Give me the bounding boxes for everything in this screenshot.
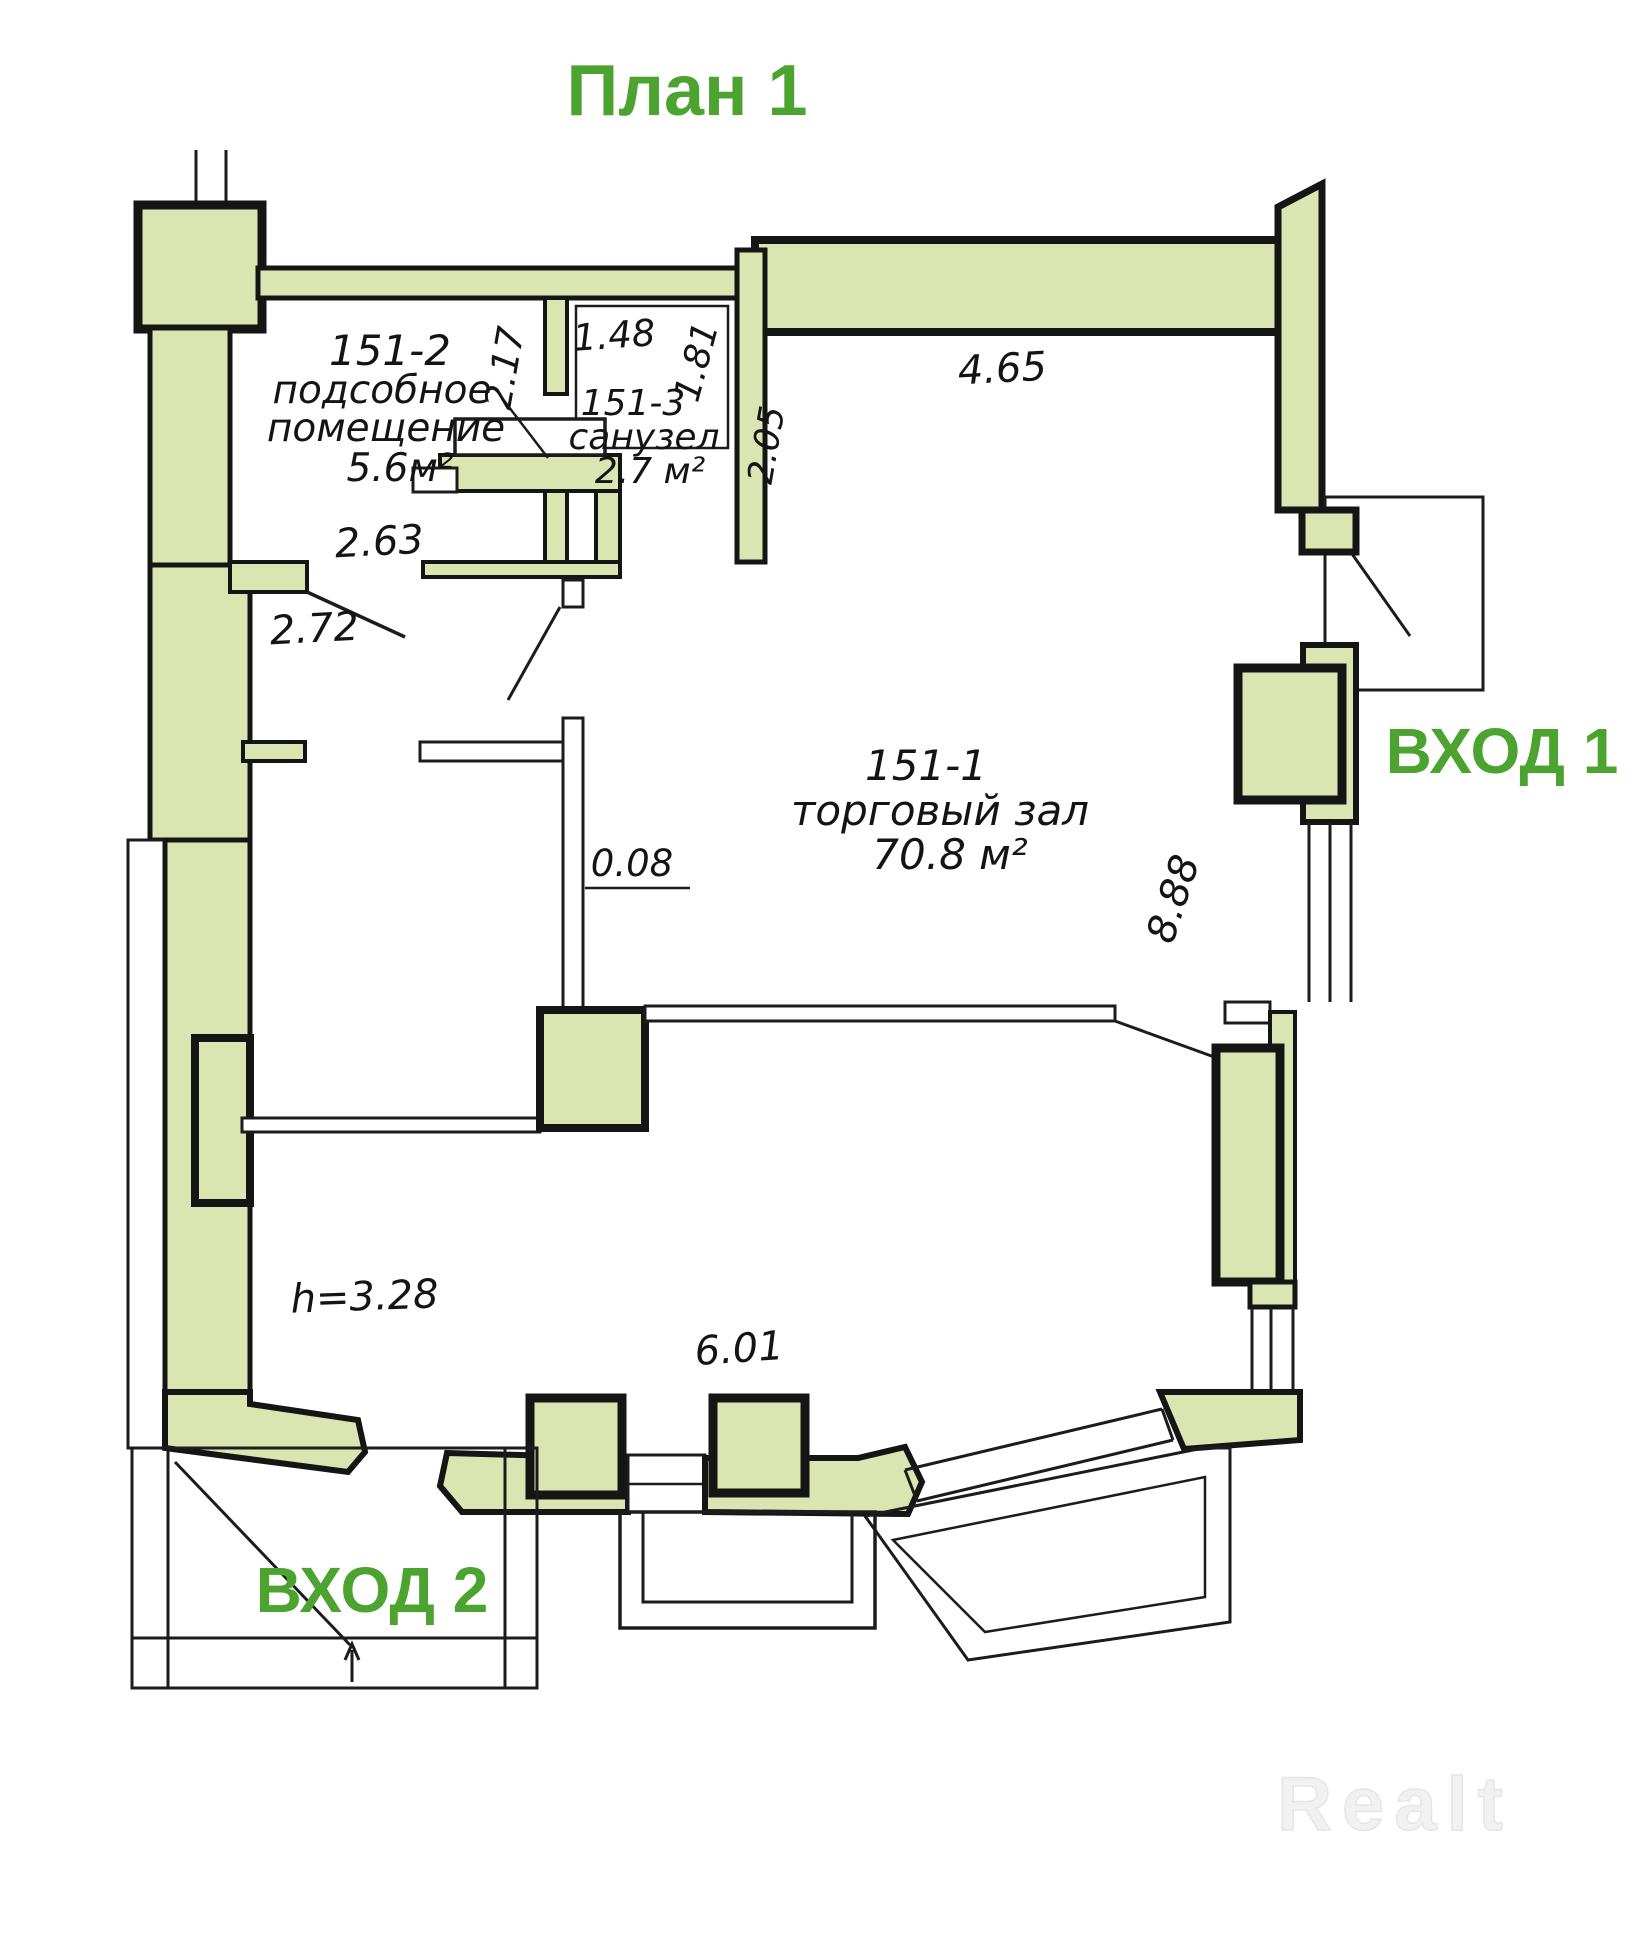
dim-181: 1.81 — [667, 318, 727, 406]
room-id-hall: 151-1 — [865, 741, 987, 790]
pilaster-left — [128, 840, 165, 1448]
partition-vertical-stub — [563, 580, 583, 607]
window-diagonal — [905, 1409, 1173, 1501]
wall-top-utility — [258, 268, 758, 298]
pillar-bottom-2 — [713, 1398, 805, 1493]
wall-bottom-left — [165, 1392, 365, 1472]
dim-465: 4.65 — [957, 344, 1048, 395]
room-name-hall: торговый зал — [791, 786, 1089, 835]
wall-utility-bottom-left — [230, 562, 307, 592]
wall-left-upper — [150, 328, 230, 565]
door-leaf-counter — [1115, 1021, 1228, 1062]
dim-008: 0.08 — [591, 842, 673, 885]
pillar-bottom-1 — [530, 1398, 622, 1495]
dim-263: 2.63 — [334, 517, 425, 568]
floor-plan-page: План 1 — [0, 0, 1640, 1933]
partition-lower — [242, 1118, 540, 1132]
wall-left-middle — [150, 565, 250, 840]
pillar-center — [540, 1010, 645, 1128]
porch-center-inner — [643, 1512, 852, 1602]
pillar-right — [1216, 1048, 1280, 1282]
dim-888: 8.88 — [1138, 850, 1209, 949]
pillar-entrance-1 — [1238, 668, 1342, 800]
door-jamb-right — [1225, 1002, 1270, 1023]
room-area-hall: 70.8 м² — [872, 830, 1028, 879]
porch-center — [620, 1512, 875, 1628]
porch-center-outer — [620, 1512, 875, 1628]
door-leaf-interior — [508, 607, 560, 700]
stairs-arrow-icon — [345, 1644, 359, 1682]
entrance-1-label: ВХОД 1 — [1386, 715, 1619, 787]
dim-ceiling-height: h=3.28 — [290, 1271, 439, 1322]
room-name-utility-line2: помещение — [267, 406, 505, 451]
wall-utility-bottom-right — [423, 562, 620, 577]
entrance-2-label: ВХОД 2 — [256, 1554, 489, 1626]
wall-right-step — [1250, 1282, 1295, 1307]
room-area-wc: 2.7 м² — [595, 451, 705, 492]
partition-wc-upper — [545, 298, 567, 394]
window-right-lower — [1252, 1307, 1293, 1392]
wall-top-main — [755, 240, 1317, 332]
floor-plan-drawing: План 1 — [0, 0, 1640, 1933]
watermark-logo: Realt — [1277, 1762, 1513, 1847]
window-right-upper — [1309, 822, 1351, 1002]
room-area-utility: 5.6м² — [346, 446, 453, 491]
wall-slant-bottom-right — [1160, 1392, 1300, 1449]
dim-217: 2.17 — [476, 323, 533, 412]
wall-wc-bottom — [440, 455, 620, 491]
wall-corner-top-right — [1278, 184, 1322, 510]
dim-148: 1.48 — [572, 311, 657, 360]
dim-272: 2.72 — [269, 604, 360, 655]
page-title: План 1 — [566, 51, 807, 131]
pillar-top-left — [138, 205, 262, 329]
wall-stub-lines — [196, 150, 226, 205]
partition-vertical — [563, 718, 583, 1010]
partition-stub-left — [243, 742, 305, 761]
wall-wc-connector — [596, 491, 620, 564]
dim-601: 6.01 — [693, 1323, 785, 1375]
partition-horizontal — [420, 742, 563, 761]
counter-line — [645, 1006, 1115, 1021]
block-entrance-1-top — [1302, 510, 1356, 552]
